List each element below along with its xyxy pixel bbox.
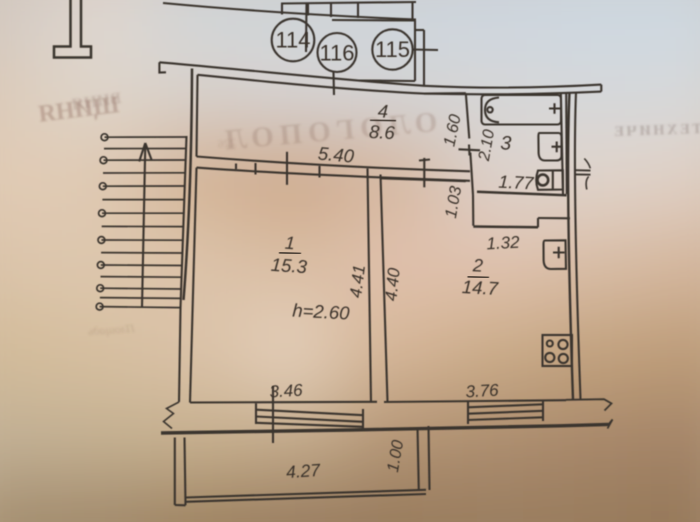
svg-text:4.41: 4.41 <box>346 264 369 299</box>
svg-text:1.32: 1.32 <box>486 233 521 254</box>
svg-text:226: 226 <box>217 135 236 151</box>
svg-text:8.6: 8.6 <box>369 121 396 143</box>
svg-text:15.3: 15.3 <box>270 254 308 278</box>
svg-text:4: 4 <box>377 100 388 122</box>
svg-text:ТЕХНИЧЕ: ТЕХНИЧЕ <box>611 121 700 140</box>
svg-text:116: 116 <box>319 41 354 66</box>
svg-text:115: 115 <box>375 37 410 62</box>
svg-text:2: 2 <box>471 255 483 276</box>
svg-text:4.27: 4.27 <box>285 460 322 482</box>
svg-text:114: 114 <box>275 28 310 53</box>
svg-text:5.40: 5.40 <box>317 143 355 167</box>
svg-text:4.40: 4.40 <box>381 266 403 301</box>
svg-text:14.7: 14.7 <box>461 276 499 299</box>
svg-text:1: 1 <box>284 233 295 254</box>
svg-text:3: 3 <box>500 132 512 155</box>
svg-text:3.76: 3.76 <box>465 381 500 402</box>
svg-text:h=2.60: h=2.60 <box>292 300 351 324</box>
svg-text:3.46: 3.46 <box>269 381 304 402</box>
svg-text:1.77: 1.77 <box>498 172 535 194</box>
